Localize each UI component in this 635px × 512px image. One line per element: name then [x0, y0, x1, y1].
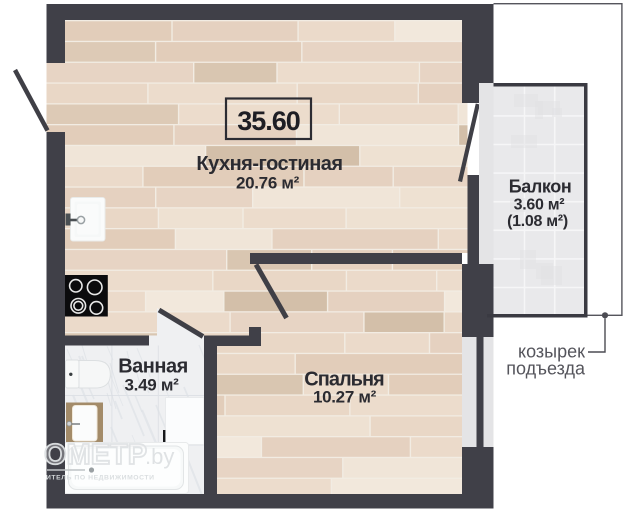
svg-text:10.27 м²: 10.27 м²	[313, 388, 377, 407]
svg-text:3.49 м²: 3.49 м²	[125, 376, 180, 395]
svg-text:Ванная: Ванная	[118, 356, 188, 378]
svg-text:35.60: 35.60	[237, 106, 300, 136]
svg-text:ИТЕЛЬ ПО НЕДВИЖИМОСТИ: ИТЕЛЬ ПО НЕДВИЖИМОСТИ	[46, 475, 155, 482]
svg-text:3.60 м²: 3.60 м²	[514, 197, 565, 214]
svg-text:ОМЕТР: ОМЕТР	[44, 439, 147, 471]
svg-text:Балкон: Балкон	[509, 177, 572, 197]
svg-text:.by: .by	[145, 444, 174, 469]
svg-text:подъезда: подъезда	[506, 359, 586, 379]
svg-text:20.76 м²: 20.76 м²	[236, 174, 300, 193]
svg-text:(1.08 м²): (1.08 м²)	[507, 213, 568, 230]
svg-text:Кухня-гостиная: Кухня-гостиная	[196, 153, 342, 175]
